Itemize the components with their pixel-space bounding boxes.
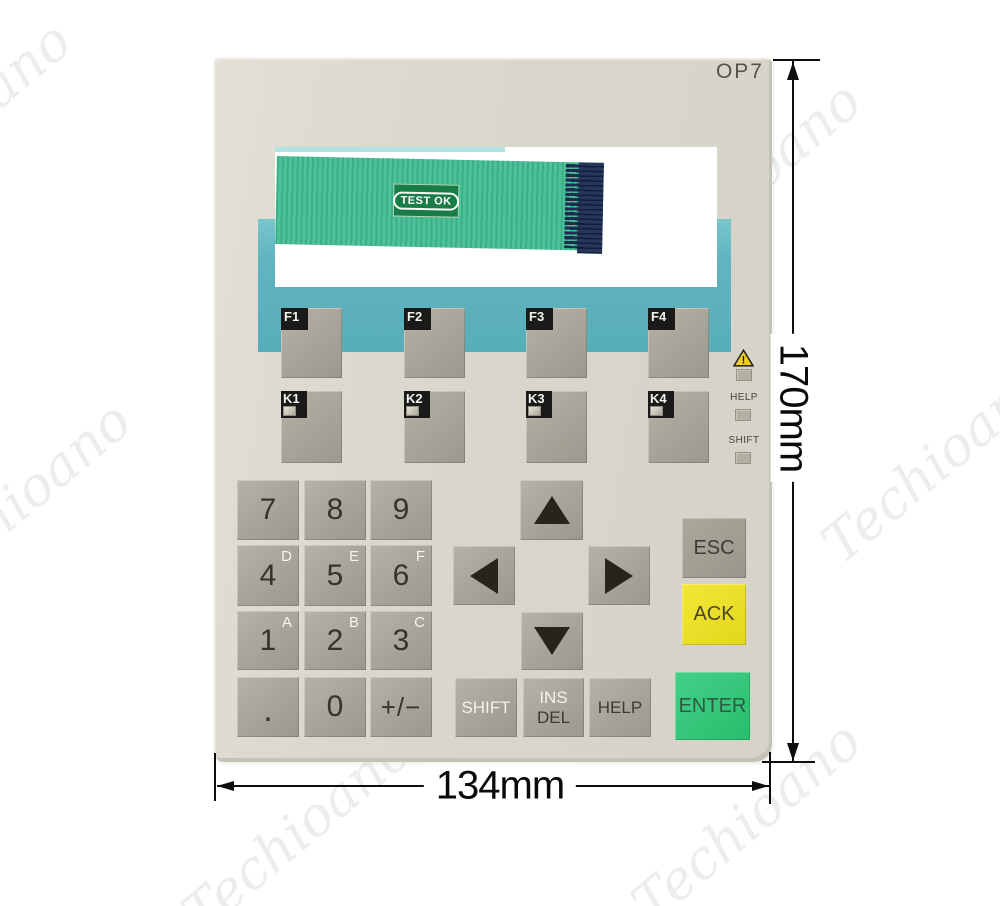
k4-key[interactable]: K4 [648,391,709,463]
dim-height-tick [762,761,815,763]
ribbon-connector [577,162,604,254]
key-shift-letter: E [349,548,359,565]
key-tab: K4 [648,391,674,418]
key-shift-letter: A [282,614,292,631]
esc-key[interactable]: ESC [682,518,746,578]
shift-indicator-label: SHIFT [722,435,766,446]
indicator-led [736,369,752,381]
numpad-key-0[interactable]: 0 [304,677,366,737]
ack-key[interactable]: ACK [682,584,746,645]
k1-key[interactable]: K1 [281,391,342,463]
svg-text:!: ! [742,355,746,367]
dim-width-label: 134mm [424,764,576,809]
key-tab: F3 [526,308,553,330]
arrow-down-key[interactable] [521,612,583,670]
key-tab: F4 [648,308,675,330]
tab-led-icon [283,406,296,416]
arrow-up-key[interactable] [520,480,583,540]
numpad-key-7[interactable]: 7 [237,480,299,540]
dim-arrowhead-right-icon [752,781,769,791]
numpad-key-2[interactable]: B2 [304,611,366,670]
shift-key[interactable]: SHIFT [455,678,517,737]
display-window: TEST OK [275,147,717,287]
dim-width-tick [214,753,216,801]
numpad-key-plusminus[interactable]: +/− [370,677,432,737]
key-shift-letter: F [416,548,425,565]
dim-arrowhead-left-icon [217,781,234,791]
key-tab: F1 [281,308,308,330]
arrow-down-icon [534,627,570,655]
arrow-left-icon [470,558,498,594]
key-shift-letter: B [349,614,359,631]
f3-key[interactable]: F3 [526,308,587,378]
membrane-panel: OP7 TEST OK F1 F2 F3 F4 K1 [214,58,772,762]
numpad-key-8[interactable]: 8 [304,480,366,540]
arrow-up-icon [534,496,570,524]
key-shift-letter: D [281,548,292,565]
f4-key[interactable]: F4 [648,308,709,378]
product-photo: Techioano Techioano Techioano Techioano … [0,0,1000,906]
f2-key[interactable]: F2 [404,308,465,378]
tab-led-icon [528,406,541,416]
arrow-left-key[interactable] [453,546,515,605]
dim-arrowhead-up-icon [787,62,799,80]
tab-led-icon [650,406,663,416]
k3-key[interactable]: K3 [526,391,587,463]
arrow-right-icon [605,558,633,594]
enter-key[interactable]: ENTER [675,672,750,740]
numpad-key-5[interactable]: E5 [304,545,366,606]
model-label: OP7 [716,60,764,84]
numpad-key-1[interactable]: A1 [237,611,299,670]
numpad-key-4[interactable]: D4 [237,545,299,606]
key-shift-letter: C [414,614,425,631]
help-indicator-label: HELP [722,392,766,403]
help-key[interactable]: HELP [589,678,651,737]
watermark-text: Techioano [810,349,1000,576]
numpad-key-9[interactable]: 9 [370,480,432,540]
ins-del-key[interactable]: INSDEL [523,678,584,737]
key-tab: K1 [281,391,307,418]
key-tab: F2 [404,308,431,330]
test-ok-label: TEST OK [393,191,459,210]
key-tab: K3 [526,391,552,418]
dim-arrowhead-down-icon [787,743,799,761]
test-ok-badge: TEST OK [393,183,460,217]
numpad-key-6[interactable]: F6 [370,545,432,606]
indicator-led [735,452,751,464]
dim-height-tick [773,59,820,61]
numpad-key-dot[interactable]: . [237,677,299,737]
indicator-led [735,409,751,421]
dim-width-tick [769,752,771,804]
key-tab: K2 [404,391,430,418]
watermark-text: Techioano [0,389,143,616]
dim-height-label: 170mm [771,334,816,482]
arrow-right-key[interactable] [588,546,650,605]
tab-led-icon [406,406,419,416]
watermark-text: Techioano [0,9,83,236]
f1-key[interactable]: F1 [281,308,342,378]
numpad-key-3[interactable]: C3 [370,611,432,670]
k2-key[interactable]: K2 [404,391,465,463]
ribbon-cable: TEST OK [275,156,604,251]
